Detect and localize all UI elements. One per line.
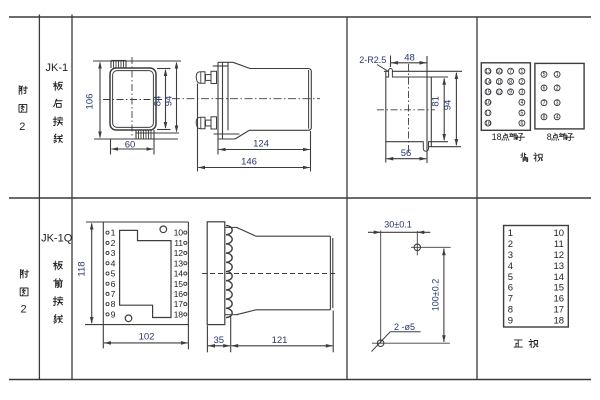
svg-text:17: 17 xyxy=(485,111,491,117)
svg-text:3: 3 xyxy=(508,250,513,261)
svg-text:13: 13 xyxy=(174,258,184,268)
svg-text:14: 14 xyxy=(485,79,491,85)
svg-text:10: 10 xyxy=(497,69,503,75)
svg-text:11: 11 xyxy=(174,238,183,248)
svg-text:15: 15 xyxy=(485,90,491,96)
svg-text:102: 102 xyxy=(139,332,155,343)
svg-text:12: 12 xyxy=(497,90,503,96)
svg-text:30±0.1: 30±0.1 xyxy=(384,220,411,230)
svg-text:3: 3 xyxy=(556,101,559,107)
svg-text:121: 121 xyxy=(272,335,288,346)
svg-text:3: 3 xyxy=(111,248,116,258)
svg-text:6: 6 xyxy=(508,283,513,294)
svg-text:8: 8 xyxy=(547,132,552,142)
svg-text:60: 60 xyxy=(125,139,136,150)
svg-text:18: 18 xyxy=(492,132,502,142)
svg-text:17: 17 xyxy=(554,304,565,315)
svg-text:2: 2 xyxy=(20,304,26,316)
svg-text:9: 9 xyxy=(509,90,512,96)
svg-text:JK-1: JK-1 xyxy=(45,62,68,74)
svg-text:2-R2.5: 2-R2.5 xyxy=(359,55,386,65)
svg-text:100±0.2: 100±0.2 xyxy=(431,279,441,311)
svg-text:1: 1 xyxy=(556,72,559,78)
svg-text:4: 4 xyxy=(521,100,524,106)
svg-text:7: 7 xyxy=(543,101,546,107)
svg-text:11: 11 xyxy=(497,79,502,85)
svg-text:94: 94 xyxy=(164,96,175,107)
svg-text:7: 7 xyxy=(509,69,512,75)
svg-text:48: 48 xyxy=(404,53,415,64)
svg-text:16: 16 xyxy=(554,294,565,305)
svg-text:7: 7 xyxy=(111,289,116,299)
svg-text:8: 8 xyxy=(509,79,512,85)
svg-text:JK-1Q: JK-1Q xyxy=(41,233,73,245)
svg-text:11: 11 xyxy=(554,239,564,250)
svg-text:17: 17 xyxy=(174,299,184,309)
svg-text:10: 10 xyxy=(554,228,565,239)
svg-text:14: 14 xyxy=(554,272,565,283)
svg-text:35: 35 xyxy=(214,335,225,346)
svg-text:5: 5 xyxy=(508,272,513,283)
svg-text:5: 5 xyxy=(111,269,116,279)
svg-text:2 -ø5: 2 -ø5 xyxy=(394,322,415,332)
svg-text:81: 81 xyxy=(431,96,442,107)
svg-text:2: 2 xyxy=(19,121,25,133)
svg-text:146: 146 xyxy=(241,157,257,168)
svg-text:6: 6 xyxy=(111,279,116,289)
svg-text:18: 18 xyxy=(554,315,565,326)
svg-text:5: 5 xyxy=(521,111,524,117)
svg-text:124: 124 xyxy=(253,139,269,150)
svg-text:1: 1 xyxy=(111,228,116,238)
svg-text:6: 6 xyxy=(521,121,524,127)
svg-text:2: 2 xyxy=(521,79,524,85)
svg-text:8: 8 xyxy=(543,115,546,121)
svg-text:2: 2 xyxy=(508,239,513,250)
svg-text:4: 4 xyxy=(111,258,116,268)
svg-text:18: 18 xyxy=(485,121,491,127)
svg-text:9: 9 xyxy=(508,315,513,326)
svg-text:1: 1 xyxy=(521,69,524,75)
svg-text:56: 56 xyxy=(401,148,412,159)
svg-text:84: 84 xyxy=(153,96,164,107)
svg-text:8: 8 xyxy=(111,299,116,309)
svg-text:8: 8 xyxy=(508,304,513,315)
svg-text:13: 13 xyxy=(485,69,491,75)
svg-text:4: 4 xyxy=(556,115,559,121)
svg-text:15: 15 xyxy=(174,279,184,289)
svg-text:4: 4 xyxy=(508,261,513,272)
svg-text:16: 16 xyxy=(485,100,491,106)
svg-text:16: 16 xyxy=(174,289,184,299)
svg-text:106: 106 xyxy=(85,94,96,110)
svg-text:118: 118 xyxy=(77,261,88,276)
svg-text:6: 6 xyxy=(543,86,546,92)
svg-text:14: 14 xyxy=(174,269,184,279)
svg-text:10: 10 xyxy=(174,228,184,238)
svg-text:2: 2 xyxy=(111,238,116,248)
svg-text:9: 9 xyxy=(111,309,116,319)
svg-text:12: 12 xyxy=(174,248,184,258)
svg-text:15: 15 xyxy=(554,283,565,294)
svg-text:3: 3 xyxy=(521,90,524,96)
svg-text:7: 7 xyxy=(508,294,513,305)
svg-text:12: 12 xyxy=(554,250,565,261)
svg-text:18: 18 xyxy=(174,309,184,319)
svg-text:2: 2 xyxy=(556,86,559,92)
svg-text:94: 94 xyxy=(443,100,454,111)
svg-text:13: 13 xyxy=(554,261,565,272)
svg-text:1: 1 xyxy=(508,228,513,239)
svg-text:5: 5 xyxy=(543,72,546,78)
